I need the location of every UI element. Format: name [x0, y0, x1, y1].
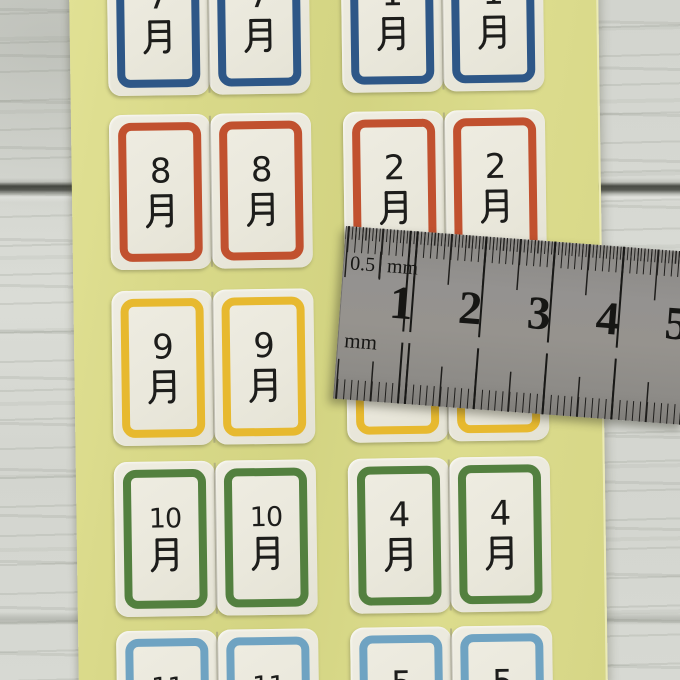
metal-ruler: 0.5 mm mm 1 2 3 4 5 — [333, 226, 680, 425]
sticker-label: 5 — [451, 625, 554, 680]
sticker-4月: 4 — [449, 456, 552, 612]
sticker-5月: 5 — [350, 626, 453, 680]
month-number: 1 — [381, 0, 402, 11]
month-number: 7 — [248, 0, 269, 13]
sticker-label: 7 — [207, 0, 310, 95]
month-kanji-icon — [250, 533, 284, 571]
sticker-10月: 10 — [114, 461, 217, 617]
sticker-pair-8月: 8 8 — [109, 112, 313, 270]
month-number: 9 — [152, 330, 173, 364]
month-number: 4 — [388, 498, 409, 532]
month-number: 10 — [149, 505, 182, 532]
sticker-11月: 11 — [116, 630, 219, 680]
sticker-label: 8 — [210, 112, 313, 268]
month-kanji-icon — [479, 187, 513, 225]
month-number: 11 — [252, 672, 285, 680]
month-number: 4 — [489, 497, 510, 531]
ruler-scale-value: 0.5 — [349, 253, 375, 275]
month-number: 7 — [147, 0, 168, 15]
month-kanji-icon — [375, 14, 409, 52]
month-number: 5 — [492, 666, 513, 680]
sticker-5月: 5 — [451, 625, 554, 680]
sticker-label: 9 — [212, 288, 315, 444]
sticker-label: 9 — [111, 290, 214, 446]
sticker-8月: 8 — [210, 112, 313, 268]
month-kanji-icon — [141, 17, 175, 55]
sticker-label: 4 — [449, 456, 552, 612]
month-number: 5 — [391, 667, 412, 680]
sticker-1月: 1 — [441, 0, 544, 92]
month-number: 9 — [253, 329, 274, 363]
sticker-pair-9月: 9 9 — [111, 288, 315, 446]
sticker-4月: 4 — [348, 457, 451, 613]
sticker-label: 5 — [350, 626, 453, 680]
sticker-8月: 8 — [109, 114, 212, 270]
sticker-1月: 1 — [340, 0, 443, 93]
month-number: 11 — [151, 674, 184, 680]
sticker-label: 1 — [441, 0, 544, 92]
month-kanji-icon — [149, 535, 183, 573]
sticker-label: 1 — [340, 0, 443, 93]
month-number: 10 — [250, 503, 283, 530]
sticker-7月: 7 — [106, 0, 209, 96]
month-kanji-icon — [247, 366, 281, 404]
sticker-label: 4 — [348, 457, 451, 613]
month-number: 8 — [150, 154, 171, 188]
month-number: 2 — [384, 151, 405, 185]
sticker-label: 7 — [106, 0, 209, 96]
month-kanji-icon — [146, 367, 180, 405]
month-kanji-icon — [383, 535, 417, 573]
sticker-pair-4月: 4 4 — [348, 456, 552, 614]
month-kanji-icon — [144, 191, 178, 229]
month-number: 1 — [482, 0, 503, 10]
sticker-7月: 7 — [207, 0, 310, 95]
month-kanji-icon — [378, 188, 412, 226]
photo-scene: 7 7 1 — [0, 0, 680, 680]
sticker-label: 11 — [116, 630, 219, 680]
month-kanji-icon — [245, 190, 279, 228]
sticker-label: 8 — [109, 114, 212, 270]
ruler-scale-unit-top: mm — [386, 256, 419, 278]
ruler-number-4: 4 — [584, 294, 631, 344]
ruler-number-1: 1 — [378, 279, 425, 329]
month-kanji-icon — [242, 16, 276, 54]
ruler-number-2: 2 — [446, 284, 493, 334]
sticker-label: 10 — [215, 459, 318, 615]
ruler-number-3: 3 — [515, 289, 562, 339]
ruler-number-5: 5 — [653, 299, 680, 349]
sticker-label: 10 — [114, 461, 217, 617]
sticker-pair-10月: 10 10 — [114, 459, 318, 617]
ruler-scale-unit-bottom: mm — [344, 330, 378, 353]
sticker-label: 11 — [217, 628, 320, 680]
sticker-9月: 9 — [111, 290, 214, 446]
month-number: 2 — [485, 150, 506, 184]
sticker-pair-1月: 1 1 — [340, 0, 544, 93]
sticker-pair-5月: 5 5 — [350, 625, 554, 680]
sticker-pair-11月: 11 11 — [116, 628, 320, 680]
sticker-10月: 10 — [215, 459, 318, 615]
sticker-9月: 9 — [212, 288, 315, 444]
month-kanji-icon — [484, 534, 518, 572]
sticker-pair-7月: 7 7 — [106, 0, 310, 96]
month-kanji-icon — [476, 13, 510, 51]
sticker-11月: 11 — [217, 628, 320, 680]
month-number: 8 — [251, 153, 272, 187]
